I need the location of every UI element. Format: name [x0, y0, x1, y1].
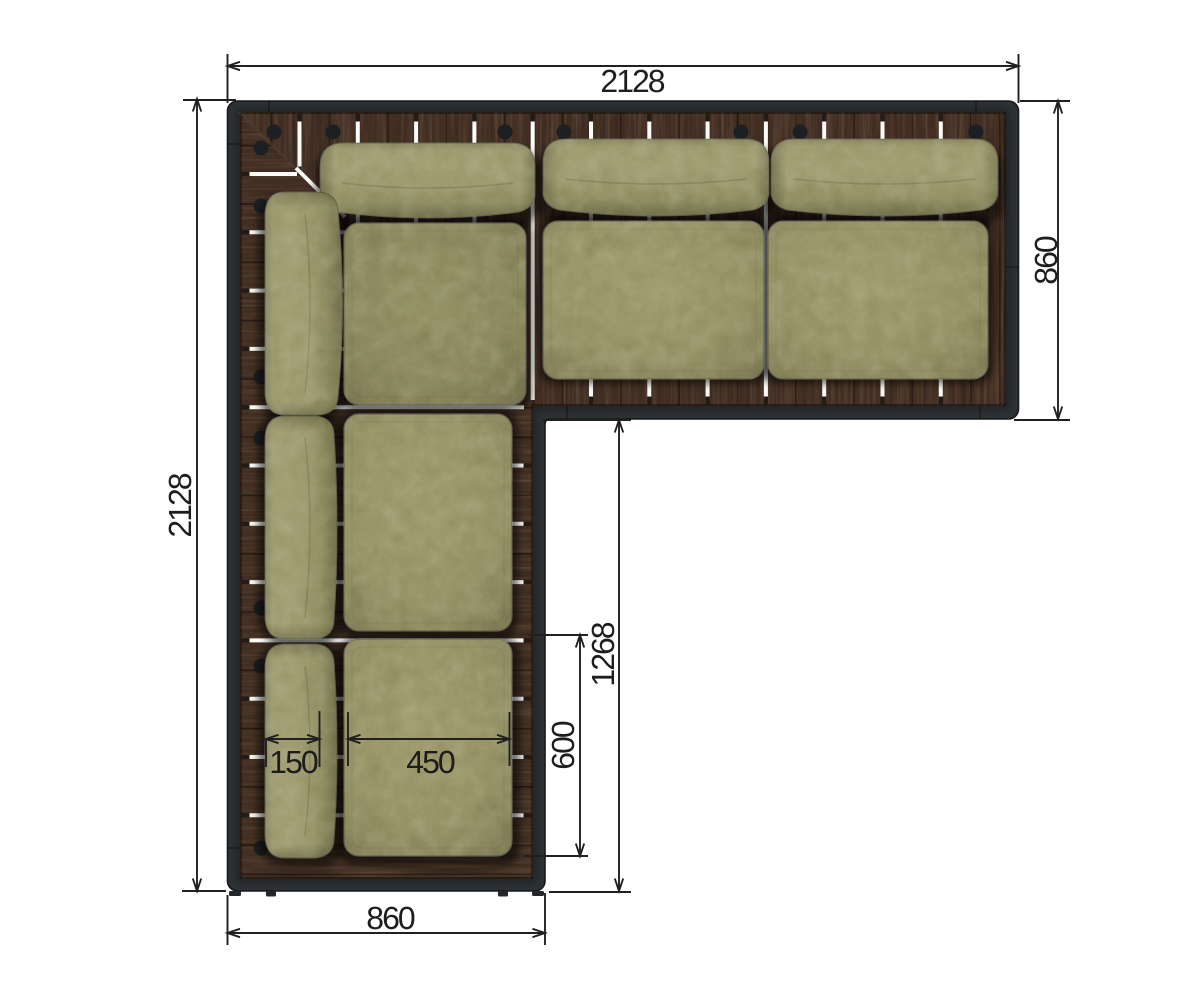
svg-text:2128: 2128 [162, 473, 198, 537]
svg-text:860: 860 [366, 900, 415, 936]
svg-text:150: 150 [269, 744, 318, 780]
svg-text:450: 450 [406, 744, 455, 780]
svg-text:2128: 2128 [600, 63, 664, 99]
svg-text:600: 600 [545, 721, 581, 770]
svg-text:1268: 1268 [585, 622, 621, 686]
svg-text:860: 860 [1028, 236, 1064, 285]
